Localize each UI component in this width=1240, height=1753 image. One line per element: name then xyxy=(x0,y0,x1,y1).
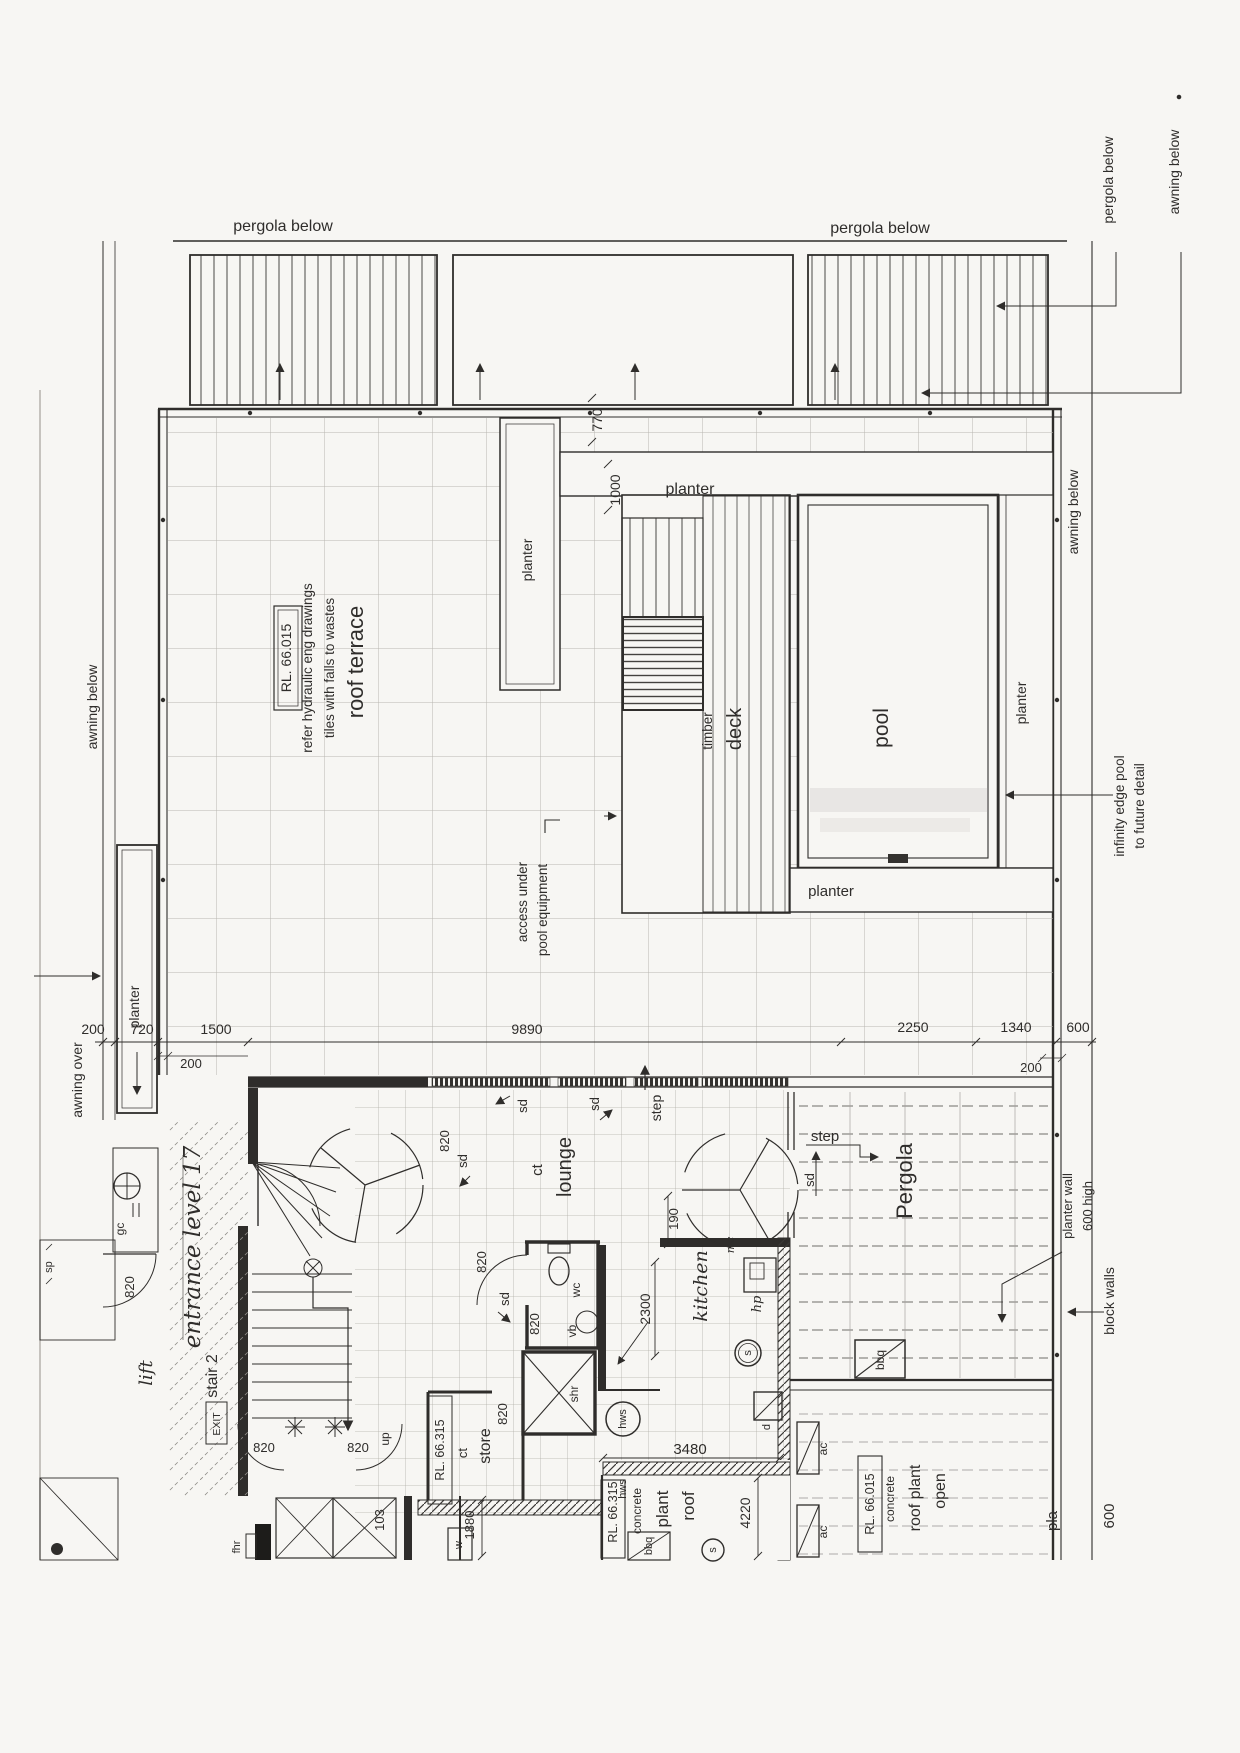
lounge-north-wall xyxy=(248,1077,1053,1087)
label-roof-plant-3: concrete xyxy=(630,1488,644,1534)
label-stair-2: stair 2 xyxy=(204,1354,221,1398)
label-awning-below-left: awning below xyxy=(84,664,100,750)
label-terrace-note-1: tiles with falls to wastes xyxy=(322,598,337,739)
dim-3480: 3480 xyxy=(673,1441,706,1458)
label-lounge-finish: ct xyxy=(529,1163,546,1176)
dim-1000: 1000 xyxy=(607,474,623,505)
label-sd-2: sd xyxy=(587,1097,602,1111)
label-infinity-1: infinity edge pool xyxy=(1112,755,1127,856)
label-step-kitchen: step xyxy=(811,1128,839,1145)
label-exit: EXIT xyxy=(211,1412,223,1436)
dim-1500: 1500 xyxy=(200,1021,231,1037)
label-bbq-2: bbq xyxy=(643,1537,655,1555)
label-pool-equipment-2: access under xyxy=(515,861,530,942)
dim-190: 190 xyxy=(666,1208,681,1230)
label-mc: mc xyxy=(724,1237,737,1254)
label-infinity-2: to future detail xyxy=(1132,763,1147,849)
label-sd-1: sd xyxy=(515,1099,530,1113)
label-hws-1: hws xyxy=(617,1409,629,1429)
dim-820-h1: 820 xyxy=(253,1440,275,1455)
label-pergola-below-edge: pergola below xyxy=(1100,136,1116,224)
dim-770: 770 xyxy=(589,408,605,432)
dim-820-r3: 820 xyxy=(527,1313,542,1335)
label-sink-1: s xyxy=(742,1350,754,1356)
label-store-rl: RL. 66.315 xyxy=(433,1419,447,1480)
label-fhr: fhr xyxy=(231,1540,243,1553)
label-hp: hp xyxy=(750,1295,765,1312)
dim-200-c: 200 xyxy=(1020,1060,1042,1075)
label-sd-4: sd xyxy=(497,1292,512,1306)
label-planter-mid: planter xyxy=(519,538,535,581)
label-sink-2: s xyxy=(707,1547,719,1553)
label-awning-over: awning over xyxy=(69,1042,85,1118)
stair-2 xyxy=(252,1162,352,1430)
label-pergola-room: Pergola xyxy=(892,1142,917,1219)
dim-103: 103 xyxy=(372,1509,387,1531)
label-pergola-below-left: pergola below xyxy=(233,218,333,235)
label-planter-top: planter xyxy=(666,481,716,498)
timber-deck xyxy=(604,495,790,913)
label-pergola-below-right: pergola below xyxy=(830,220,930,237)
label-open-plant-2: roof plant xyxy=(907,1464,924,1531)
label-roof-plant-2: plant xyxy=(653,1490,672,1527)
label-d: d xyxy=(761,1424,773,1430)
dim-820-h2: 820 xyxy=(347,1440,369,1455)
planter-top-strip xyxy=(560,452,1053,496)
label-planter-right: planter xyxy=(1013,681,1029,724)
dim-820-r2: 820 xyxy=(474,1251,489,1273)
label-roof-terrace: roof terrace xyxy=(343,606,368,719)
floor-plan-drawing: pergola below pergola below planter plan… xyxy=(0,0,1240,1753)
pergola-structures xyxy=(190,255,1048,405)
label-store: store xyxy=(477,1428,494,1464)
dim-820-r4: 820 xyxy=(495,1403,510,1425)
label-edge-600: 600 xyxy=(1101,1503,1118,1528)
dim-2250: 2250 xyxy=(897,1019,928,1035)
dim-9890: 9890 xyxy=(511,1021,542,1037)
entry-side-cells xyxy=(40,1148,158,1560)
label-ac-2: ac xyxy=(816,1526,830,1539)
planter-left xyxy=(34,845,157,1113)
label-planter-bottom: planter xyxy=(808,883,854,900)
floor-plan-scan: pergola below pergola below planter plan… xyxy=(0,0,1240,1753)
label-roof-plant-rl: RL. 66.315 xyxy=(606,1481,620,1542)
label-entrance-level: entrance level 17 xyxy=(180,1145,206,1348)
planter-right-strip xyxy=(999,495,1053,868)
dim-1340: 1340 xyxy=(1000,1019,1031,1035)
label-open-plant-1: open xyxy=(932,1473,949,1509)
label-edge-pla: pla xyxy=(1044,1510,1061,1531)
label-planter-left: planter xyxy=(126,985,142,1028)
label-sd-3: sd xyxy=(802,1173,817,1187)
label-roof-plant-1: roof xyxy=(679,1491,698,1521)
dim-4220: 4220 xyxy=(737,1497,753,1528)
label-pool-equipment-1: pool equipment xyxy=(535,864,550,957)
label-up: up xyxy=(378,1432,392,1446)
pool-outline xyxy=(798,495,998,868)
label-rl-66015-terrace: RL. 66.015 xyxy=(278,624,294,693)
label-w: w xyxy=(453,1541,465,1550)
label-ac-1: ac xyxy=(816,1443,830,1456)
label-open-plant-3: concrete xyxy=(883,1476,897,1522)
label-open-plant-rl: RL. 66.015 xyxy=(863,1473,877,1534)
dim-2300: 2300 xyxy=(637,1293,653,1324)
label-planter-wall-2: 600 high xyxy=(1080,1181,1095,1231)
label-kitchen: kitchen xyxy=(690,1250,712,1322)
label-lounge: lounge xyxy=(554,1137,576,1197)
dim-820-r1: 820 xyxy=(437,1130,452,1152)
dim-200-a: 200 xyxy=(81,1021,105,1037)
label-awning-below-edge: awning below xyxy=(1166,129,1182,215)
label-deck: deck xyxy=(724,707,746,750)
label-shr: shr xyxy=(567,1386,581,1403)
label-sd-5: sd xyxy=(455,1154,470,1168)
label-gc: gc xyxy=(113,1223,127,1236)
label-vb: vb xyxy=(565,1324,579,1337)
label-planter-wall-1: planter wall xyxy=(1060,1173,1075,1239)
label-wc: wc xyxy=(569,1283,583,1299)
label-lift: lift xyxy=(136,1360,157,1386)
label-sp: sp xyxy=(43,1261,55,1273)
label-bbq-1: bbq xyxy=(873,1350,887,1370)
dim-1880: 1880 xyxy=(462,1511,477,1540)
dim-820-r5: 820 xyxy=(122,1276,137,1298)
label-pool: pool xyxy=(870,708,893,748)
label-block-walls: block walls xyxy=(1101,1267,1117,1335)
dim-200-b: 200 xyxy=(180,1056,202,1071)
label-step-top: step xyxy=(648,1095,664,1122)
label-awning-below-right: awning below xyxy=(1065,469,1081,555)
dim-600: 600 xyxy=(1066,1019,1090,1035)
label-deck-timber: timber xyxy=(700,712,715,750)
label-store-finish: ct xyxy=(455,1448,470,1459)
shower-cubicle xyxy=(523,1352,595,1434)
